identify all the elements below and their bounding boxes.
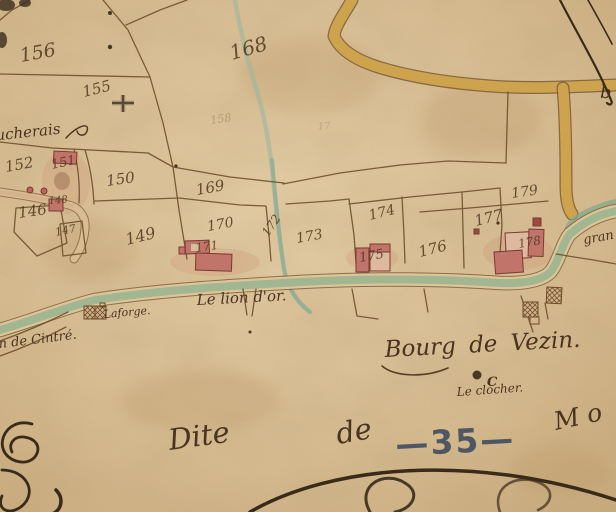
parcel-label-148: 148 — [48, 194, 68, 207]
building-hatched-2 — [523, 302, 538, 317]
building-dot-1 — [27, 187, 33, 193]
building-hatched-1 — [546, 287, 562, 304]
clocher-letter-c: C — [487, 375, 498, 390]
cadastral-map: 156 155 168 152 151 150 146 148 147 149 … — [0, 0, 616, 512]
building-178-c — [533, 218, 541, 226]
map-canvas[interactable]: 156 155 168 152 151 150 146 148 147 149 … — [0, 0, 616, 512]
building-171-c — [179, 247, 185, 254]
clocher-dot — [473, 371, 482, 380]
title-word-de: de — [333, 411, 374, 451]
building-dot-2 — [41, 188, 47, 194]
faint-parcel-label-17: 17 — [317, 121, 331, 133]
building-171-b — [195, 253, 232, 271]
building-178-b — [494, 250, 523, 274]
sheet-number-35: —35— — [394, 419, 516, 464]
edge-letter-b: b — [600, 82, 612, 103]
